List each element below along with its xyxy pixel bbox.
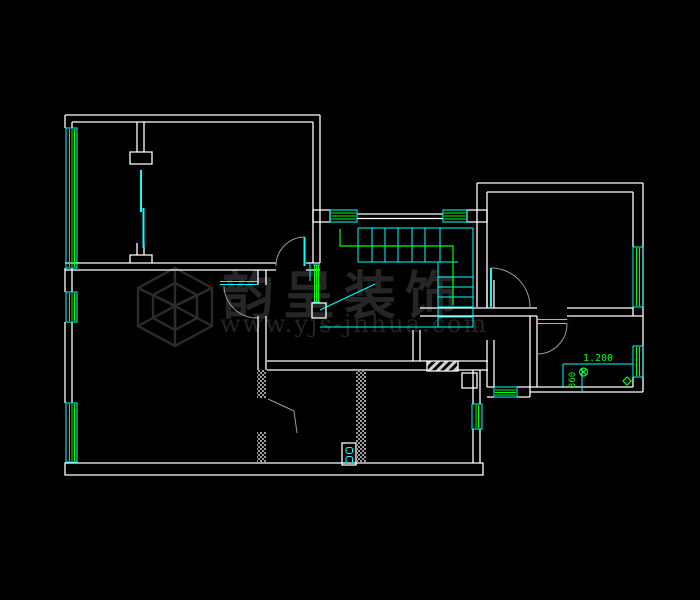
- stair-hall-window: [313, 265, 320, 302]
- dimension-label: 1.200: [583, 353, 613, 364]
- fixtures: [346, 368, 631, 464]
- floor-plan-drawing: 韵呈装饰 www.yjs-jnhua.com: [0, 0, 700, 600]
- watermark-url-text: www.yjs-jnhua.com: [220, 310, 488, 338]
- window: [330, 210, 357, 222]
- watermark: 韵呈装饰 www.yjs-jnhua.com: [138, 266, 488, 346]
- checkered-hatch-wall: [257, 370, 266, 398]
- walls-kitchen-bath-rooms: [257, 370, 480, 465]
- cad-viewport: 韵呈装饰 www.yjs-jnhua.com: [0, 0, 700, 600]
- checkered-hatch-wall: [257, 432, 266, 463]
- window: [66, 403, 77, 462]
- dimension-annotations: 1.200 360: [563, 353, 633, 391]
- window: [633, 346, 643, 377]
- door: [537, 320, 567, 355]
- dimension-label: 360: [568, 372, 578, 388]
- sliding-door: [141, 170, 144, 248]
- walls-top-right-room: [477, 183, 643, 392]
- walls-corridor-bathroom: [487, 280, 643, 397]
- door: [276, 237, 305, 266]
- stove-burners-icon: [346, 448, 353, 464]
- checkered-hatch-wall: [356, 370, 366, 463]
- door: [491, 268, 530, 307]
- diagonal-hatch-wall: [428, 362, 458, 371]
- window: [494, 387, 517, 397]
- walls-hall-south: [267, 361, 488, 388]
- window: [66, 292, 77, 322]
- walls-top-left-block: [65, 115, 320, 403]
- window: [472, 404, 482, 429]
- window: [443, 210, 467, 222]
- door: [268, 399, 297, 433]
- floor-drain-icon: [580, 368, 588, 376]
- window: [66, 128, 77, 268]
- diamond-marker-icon: [623, 377, 631, 385]
- isometric-cube-logo-icon: [138, 268, 212, 346]
- window: [633, 247, 643, 307]
